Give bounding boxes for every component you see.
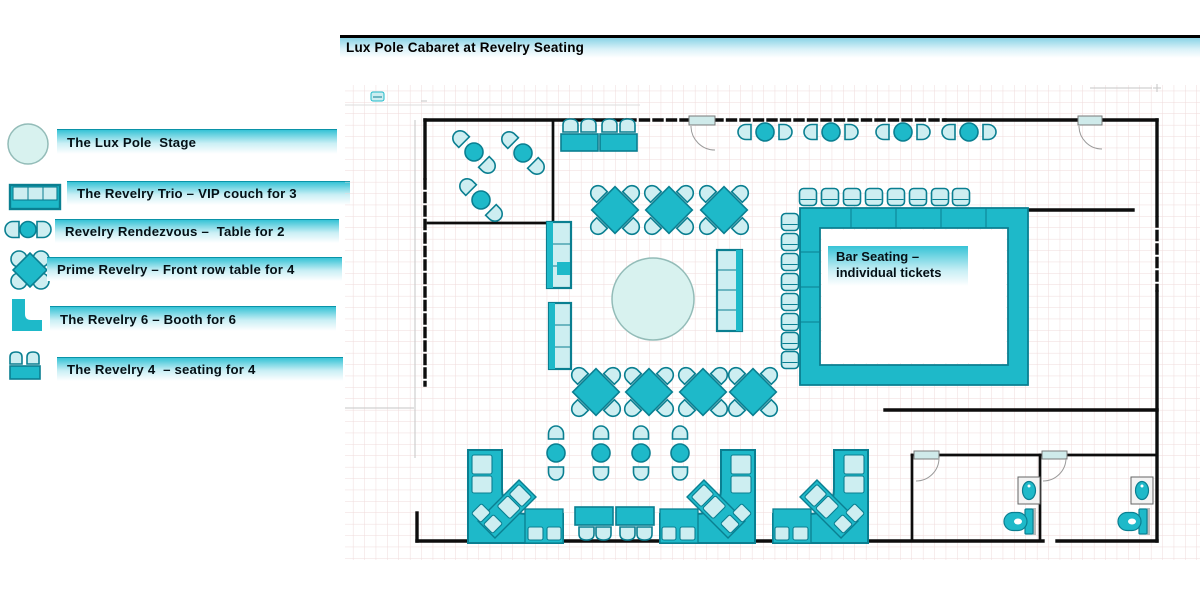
- legend-item-front-row-table: Prime Revelry – Front row table for 4: [47, 257, 342, 281]
- table-for-two: [632, 426, 650, 480]
- bar-seating-label: Bar Seating – individual tickets: [828, 246, 968, 286]
- vip-couch: [547, 222, 571, 288]
- table-for-two: [671, 426, 689, 480]
- bench-seat: [575, 507, 613, 540]
- front-row-table: [726, 365, 781, 420]
- page-title: Lux Pole Cabaret at Revelry Seating: [340, 35, 1200, 58]
- front-row-table: [676, 365, 731, 420]
- table-for-two: [547, 426, 565, 480]
- bar-stool-column: [782, 214, 799, 369]
- booth-icon: [10, 297, 44, 333]
- front-row-table: [642, 183, 697, 238]
- vip-couch: [549, 303, 571, 369]
- legend-item-vip-couch: The Revelry Trio – VIP couch for 3: [67, 181, 350, 205]
- sink-icon: [1018, 477, 1040, 504]
- table-for-two-icon: [4, 220, 52, 239]
- vip-couch-icon: [8, 183, 62, 211]
- sink-icon: [1131, 477, 1153, 504]
- table-for-two: [804, 123, 858, 141]
- lux-pole-stage: [612, 258, 694, 340]
- front-row-table: [697, 183, 752, 238]
- bench-seating-icon: [8, 351, 42, 381]
- floor-plan: [345, 82, 1200, 560]
- bar-counter: [800, 208, 1028, 385]
- stage-circle-icon: [5, 121, 51, 167]
- legend-item-booth: The Revelry 6 – Booth for 6: [50, 306, 336, 331]
- legend-item-bench-seating: The Revelry 4 – seating for 4: [57, 357, 343, 381]
- table-for-two: [592, 426, 610, 480]
- seating-chart: Lux Pole Cabaret at Revelry Seating The …: [0, 0, 1200, 614]
- table-for-two: [942, 123, 996, 141]
- table-for-two: [876, 123, 930, 141]
- front-row-table: [588, 183, 643, 238]
- vip-couch: [717, 250, 742, 331]
- bench-seat: [616, 507, 654, 540]
- table-for-two: [738, 123, 792, 141]
- front-row-table: [569, 365, 624, 420]
- front-row-table: [622, 365, 677, 420]
- legend-item-stage: The Lux Pole Stage: [57, 129, 337, 154]
- legend-item-table-for-two: Revelry Rendezvous – Table for 2: [55, 219, 339, 243]
